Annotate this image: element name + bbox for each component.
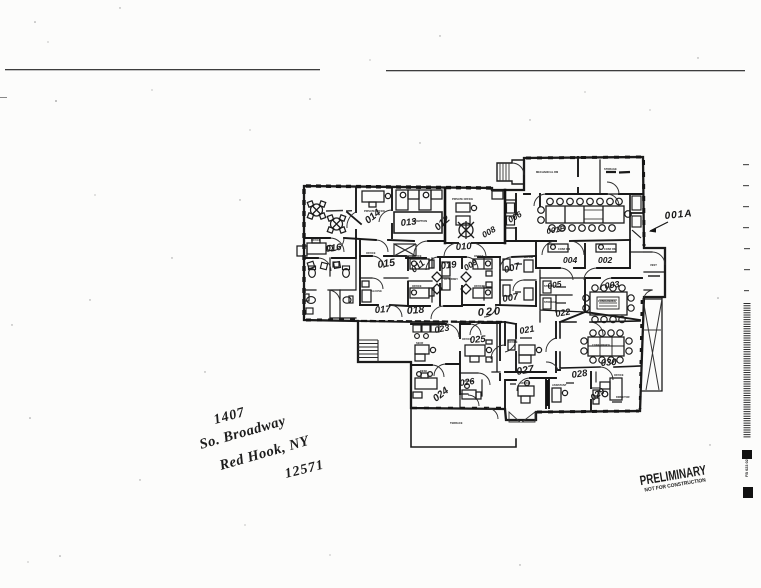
svg-text:DIRECTOR: DIRECTOR bbox=[616, 395, 630, 399]
svg-text:TERRACE: TERRACE bbox=[450, 421, 463, 425]
svg-text:PRIVATE OFFICE: PRIVATE OFFICE bbox=[364, 209, 385, 213]
svg-text:030: 030 bbox=[600, 357, 617, 369]
svg-text:010: 010 bbox=[455, 241, 472, 253]
svg-text:OFFICE: OFFICE bbox=[520, 381, 530, 385]
svg-text:ASSISTANT: ASSISTANT bbox=[552, 383, 567, 387]
svg-text:OFFICE: OFFICE bbox=[474, 254, 484, 258]
svg-text:OFFICE: OFFICE bbox=[366, 251, 376, 255]
svg-text:003: 003 bbox=[604, 279, 620, 291]
svg-text:STORAGE: STORAGE bbox=[604, 167, 617, 171]
svg-text:CONF RM: CONF RM bbox=[558, 247, 570, 251]
svg-text:RECEPTION: RECEPTION bbox=[412, 219, 427, 223]
svg-text:OFFICE: OFFICE bbox=[412, 284, 422, 288]
svg-text:OFFICE: OFFICE bbox=[508, 340, 518, 344]
svg-text:WK RM: WK RM bbox=[524, 255, 533, 259]
svg-text:DESK: DESK bbox=[420, 369, 427, 373]
svg-text:CONFERENCE: CONFERENCE bbox=[598, 299, 616, 303]
svg-text:FB 023 02: FB 023 02 bbox=[745, 459, 749, 477]
svg-text:ATTORNEY: ATTORNEY bbox=[444, 277, 458, 281]
svg-text:004: 004 bbox=[563, 255, 577, 265]
svg-text:OFFICE: OFFICE bbox=[420, 185, 430, 189]
svg-text:016: 016 bbox=[325, 242, 343, 255]
svg-text:OFFICE: OFFICE bbox=[474, 284, 484, 288]
svg-text:015: 015 bbox=[377, 257, 396, 271]
svg-text:CONFERENCE: CONFERENCE bbox=[592, 343, 610, 347]
svg-text:025: 025 bbox=[469, 334, 486, 346]
svg-text:019: 019 bbox=[440, 259, 458, 272]
svg-text:STORAGE: STORAGE bbox=[544, 300, 557, 304]
svg-text:028: 028 bbox=[571, 368, 589, 381]
svg-text:020: 020 bbox=[477, 305, 502, 319]
svg-text:OFFICE: OFFICE bbox=[398, 185, 408, 189]
svg-text:OFFICE: OFFICE bbox=[462, 337, 472, 341]
svg-text:OFFICE: OFFICE bbox=[464, 379, 474, 383]
svg-text:002: 002 bbox=[598, 255, 612, 265]
svg-text:OFFICE: OFFICE bbox=[311, 238, 321, 242]
svg-text:MECHANICAL RM: MECHANICAL RM bbox=[536, 170, 558, 174]
svg-text:OFFICE: OFFICE bbox=[614, 373, 624, 377]
svg-text:017: 017 bbox=[374, 304, 391, 316]
svg-text:OFFICE: OFFICE bbox=[412, 254, 422, 258]
svg-text:ALCOVE: ALCOVE bbox=[371, 289, 382, 293]
svg-text:VEST: VEST bbox=[650, 263, 657, 267]
svg-text:CONF RM: CONF RM bbox=[604, 247, 616, 251]
svg-text:SECR: SECR bbox=[416, 341, 423, 345]
svg-text:PRIVATE OFFICE: PRIVATE OFFICE bbox=[452, 197, 473, 201]
svg-text:018: 018 bbox=[406, 304, 424, 317]
svg-text:STORAGE: STORAGE bbox=[544, 284, 557, 288]
